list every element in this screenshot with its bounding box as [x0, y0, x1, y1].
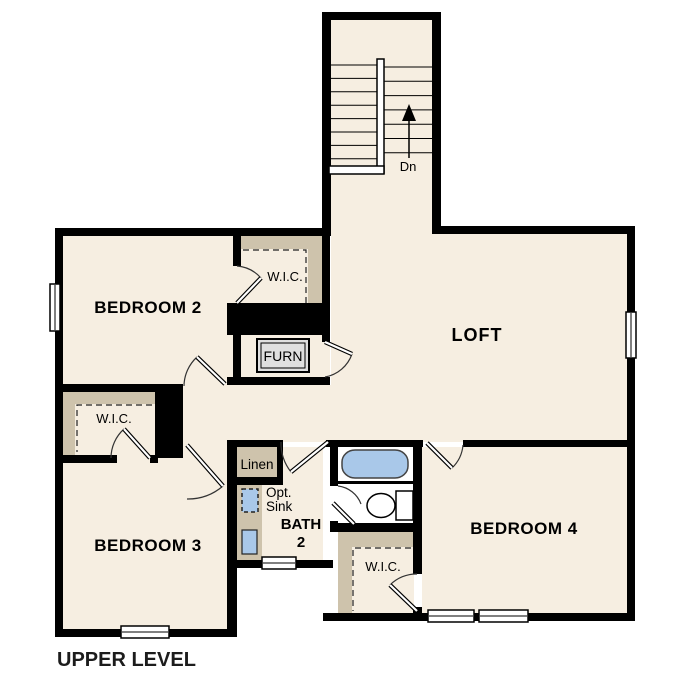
bathtub [342, 450, 408, 478]
bedroom3-label: BEDROOM 3 [94, 536, 201, 555]
bath-label-line2: 2 [297, 534, 305, 551]
window-bedroom4-bottom-right [479, 610, 528, 622]
bedroom2-label: BEDROOM 2 [94, 298, 201, 317]
window-bedroom4-bottom-left [428, 610, 474, 622]
window-bath-bottom [262, 557, 296, 569]
window-loft-right [626, 312, 636, 358]
wic-bedroom2-label: W.I.C. [267, 269, 302, 284]
loft-label: LOFT [452, 325, 503, 345]
bath-label-line1: BATH [281, 516, 322, 533]
floor-plan-drawing: Dn [0, 0, 687, 687]
stairs-down-label: Dn [400, 159, 417, 174]
opt-sink-label-line1: Opt. [266, 485, 292, 500]
plan-title: UPPER LEVEL [57, 649, 196, 671]
sink [242, 530, 257, 554]
opt-sink-label-line2: Sink [266, 499, 293, 514]
stair-rail [377, 59, 384, 173]
linen-label: Linen [240, 457, 273, 472]
floor-plan: Dn [0, 0, 687, 687]
window-bedroom2-left [50, 284, 60, 331]
furnace-label: FURN [264, 348, 303, 364]
bedroom4-label: BEDROOM 4 [470, 519, 578, 538]
optional-sink [242, 489, 258, 512]
stair-landing-edge [329, 166, 384, 174]
wic-bedroom4-label: W.I.C. [365, 559, 400, 574]
wic-bedroom3-label: W.I.C. [96, 411, 131, 426]
window-bedroom3-bottom [121, 626, 169, 638]
